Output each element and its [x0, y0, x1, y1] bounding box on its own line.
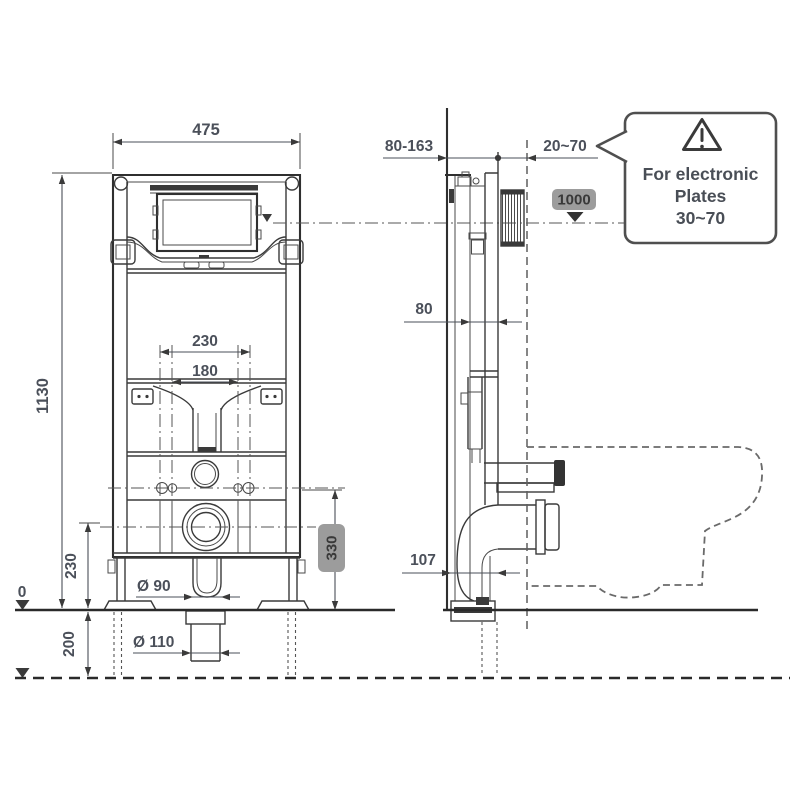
supply-pipe-cap [554, 460, 565, 486]
arrowhead [85, 667, 91, 676]
drawing-canvas: 475 1130 230 180 330 230 0 200 [0, 0, 800, 800]
drain-pipe-below-floor [191, 624, 220, 661]
flush-bend-hole [192, 461, 219, 488]
foot [104, 601, 156, 610]
callout-line-3: 30~70 [676, 208, 725, 228]
reference-lines [15, 610, 790, 678]
bracket-dot [137, 395, 140, 398]
arrowhead [438, 155, 447, 161]
arrowhead [221, 594, 230, 600]
bracket-dot [273, 395, 276, 398]
floor-level-label: 0 [18, 584, 27, 601]
bowl-supply-pipe [484, 463, 554, 483]
dim-cistern-depth-label: 80 [415, 301, 432, 318]
arrowhead [172, 379, 181, 385]
dim-bolt-spacing-inner-label: 180 [192, 363, 218, 380]
corner-hole [286, 177, 299, 190]
warning-icon-dot [700, 145, 704, 149]
plate-height-marker-icon [262, 214, 272, 222]
dim-wall-range-label: 20~70 [543, 138, 587, 155]
mounting-ear-slot [116, 245, 130, 259]
arrowhead [182, 650, 191, 656]
callout-line-2: Plates [675, 186, 727, 206]
outlet-pipe-inner [197, 558, 217, 580]
arrowhead [113, 139, 122, 145]
cross-rail [127, 269, 286, 273]
flush-valve-body [472, 240, 484, 254]
arrowhead [85, 599, 91, 608]
callout: For electronic Plates 30~70 [597, 113, 776, 243]
callout-line-1: For electronic [643, 164, 759, 184]
cistern-front-panel [485, 152, 498, 505]
dim-depth-range-label: 80-163 [385, 138, 434, 155]
down-pipe-inner [198, 413, 216, 452]
reference-dot [495, 155, 501, 161]
bracket [261, 389, 282, 404]
plate-recess-bar [150, 185, 258, 191]
level-marker-icon [16, 600, 30, 610]
cistern-bottom [470, 371, 498, 377]
leg-clip [298, 560, 305, 573]
drain-spigot-bell [545, 504, 559, 550]
clip [209, 262, 224, 268]
flush-pipe-lower [472, 449, 480, 463]
front-view-dimensions: 475 1130 230 180 330 230 0 200 [16, 121, 644, 678]
dim-outlet-height-label: 230 [63, 553, 80, 579]
arrowhead [85, 523, 91, 532]
front-view-frame [104, 175, 309, 676]
pipe-coupling [186, 611, 225, 624]
corner-hole [115, 177, 128, 190]
drain-spigot [498, 505, 536, 549]
clip [184, 262, 199, 268]
callout-tail [597, 131, 627, 162]
installation-drawing: 475 1130 230 180 330 230 0 200 [0, 0, 800, 800]
dim-outlet-diameter-label: Ø 90 [137, 578, 171, 595]
drain-spigot-flange [536, 500, 545, 554]
outlet-pipe-bottom-inner [197, 580, 217, 593]
flush-plate-window-inner [163, 200, 251, 245]
dim-plate-height-label: 1000 [557, 192, 590, 209]
dim-height-label: 1130 [34, 378, 52, 414]
plate-height-marker-icon [567, 212, 584, 222]
arrowhead [527, 155, 536, 161]
flush-plate-window [157, 194, 257, 251]
arrowhead [85, 612, 91, 621]
pipe-seal [198, 447, 216, 452]
arrowhead [184, 594, 193, 600]
arrowhead [220, 650, 229, 656]
dim-drain-diameter-label: Ø 110 [133, 634, 174, 651]
bracket-dot [265, 395, 268, 398]
drain-elbow-outer [457, 505, 498, 601]
supply-flange [497, 483, 554, 492]
flush-bend-hole-inner [195, 464, 216, 485]
arrowhead [461, 319, 470, 325]
inlet-valve [458, 177, 471, 186]
dim-bolt-spacing-outer-label: 230 [192, 333, 218, 350]
cross-rail [127, 452, 286, 456]
dim-width-label: 475 [192, 121, 220, 139]
arrowhead [332, 490, 338, 499]
pipe-clamp [461, 393, 468, 404]
arrowhead [291, 139, 300, 145]
notch [199, 255, 209, 259]
supply-connection [449, 189, 454, 203]
flush-valve [469, 233, 486, 239]
side-view-dimensions: 80-163 20~70 1000 80 107 [383, 138, 598, 576]
arrowhead [332, 601, 338, 610]
arrowhead [497, 570, 506, 576]
down-pipe [193, 408, 221, 452]
dim-below-floor-label: 200 [61, 631, 78, 657]
bracket [132, 389, 153, 404]
level-marker-icon [16, 668, 30, 678]
arrowhead [160, 349, 169, 355]
leg-clip [108, 560, 115, 573]
arrowhead [229, 379, 238, 385]
flush-plate-hatch [502, 194, 523, 242]
inlet-fitting [473, 178, 479, 184]
foot [257, 601, 309, 610]
arrowhead [241, 349, 250, 355]
bracket-dot [145, 395, 148, 398]
dim-bolt-height-label: 330 [324, 535, 341, 560]
arrowhead [498, 319, 507, 325]
plate-bar [501, 242, 524, 247]
dim-foot-offset-label: 107 [410, 552, 436, 569]
arrowhead [59, 175, 65, 184]
funnel-curve [221, 386, 261, 410]
plate-bar [501, 190, 524, 195]
hidden-drain-extension [482, 622, 497, 676]
funnel-curve [153, 386, 193, 410]
arrowhead [59, 599, 65, 608]
mounting-ear [111, 240, 135, 264]
